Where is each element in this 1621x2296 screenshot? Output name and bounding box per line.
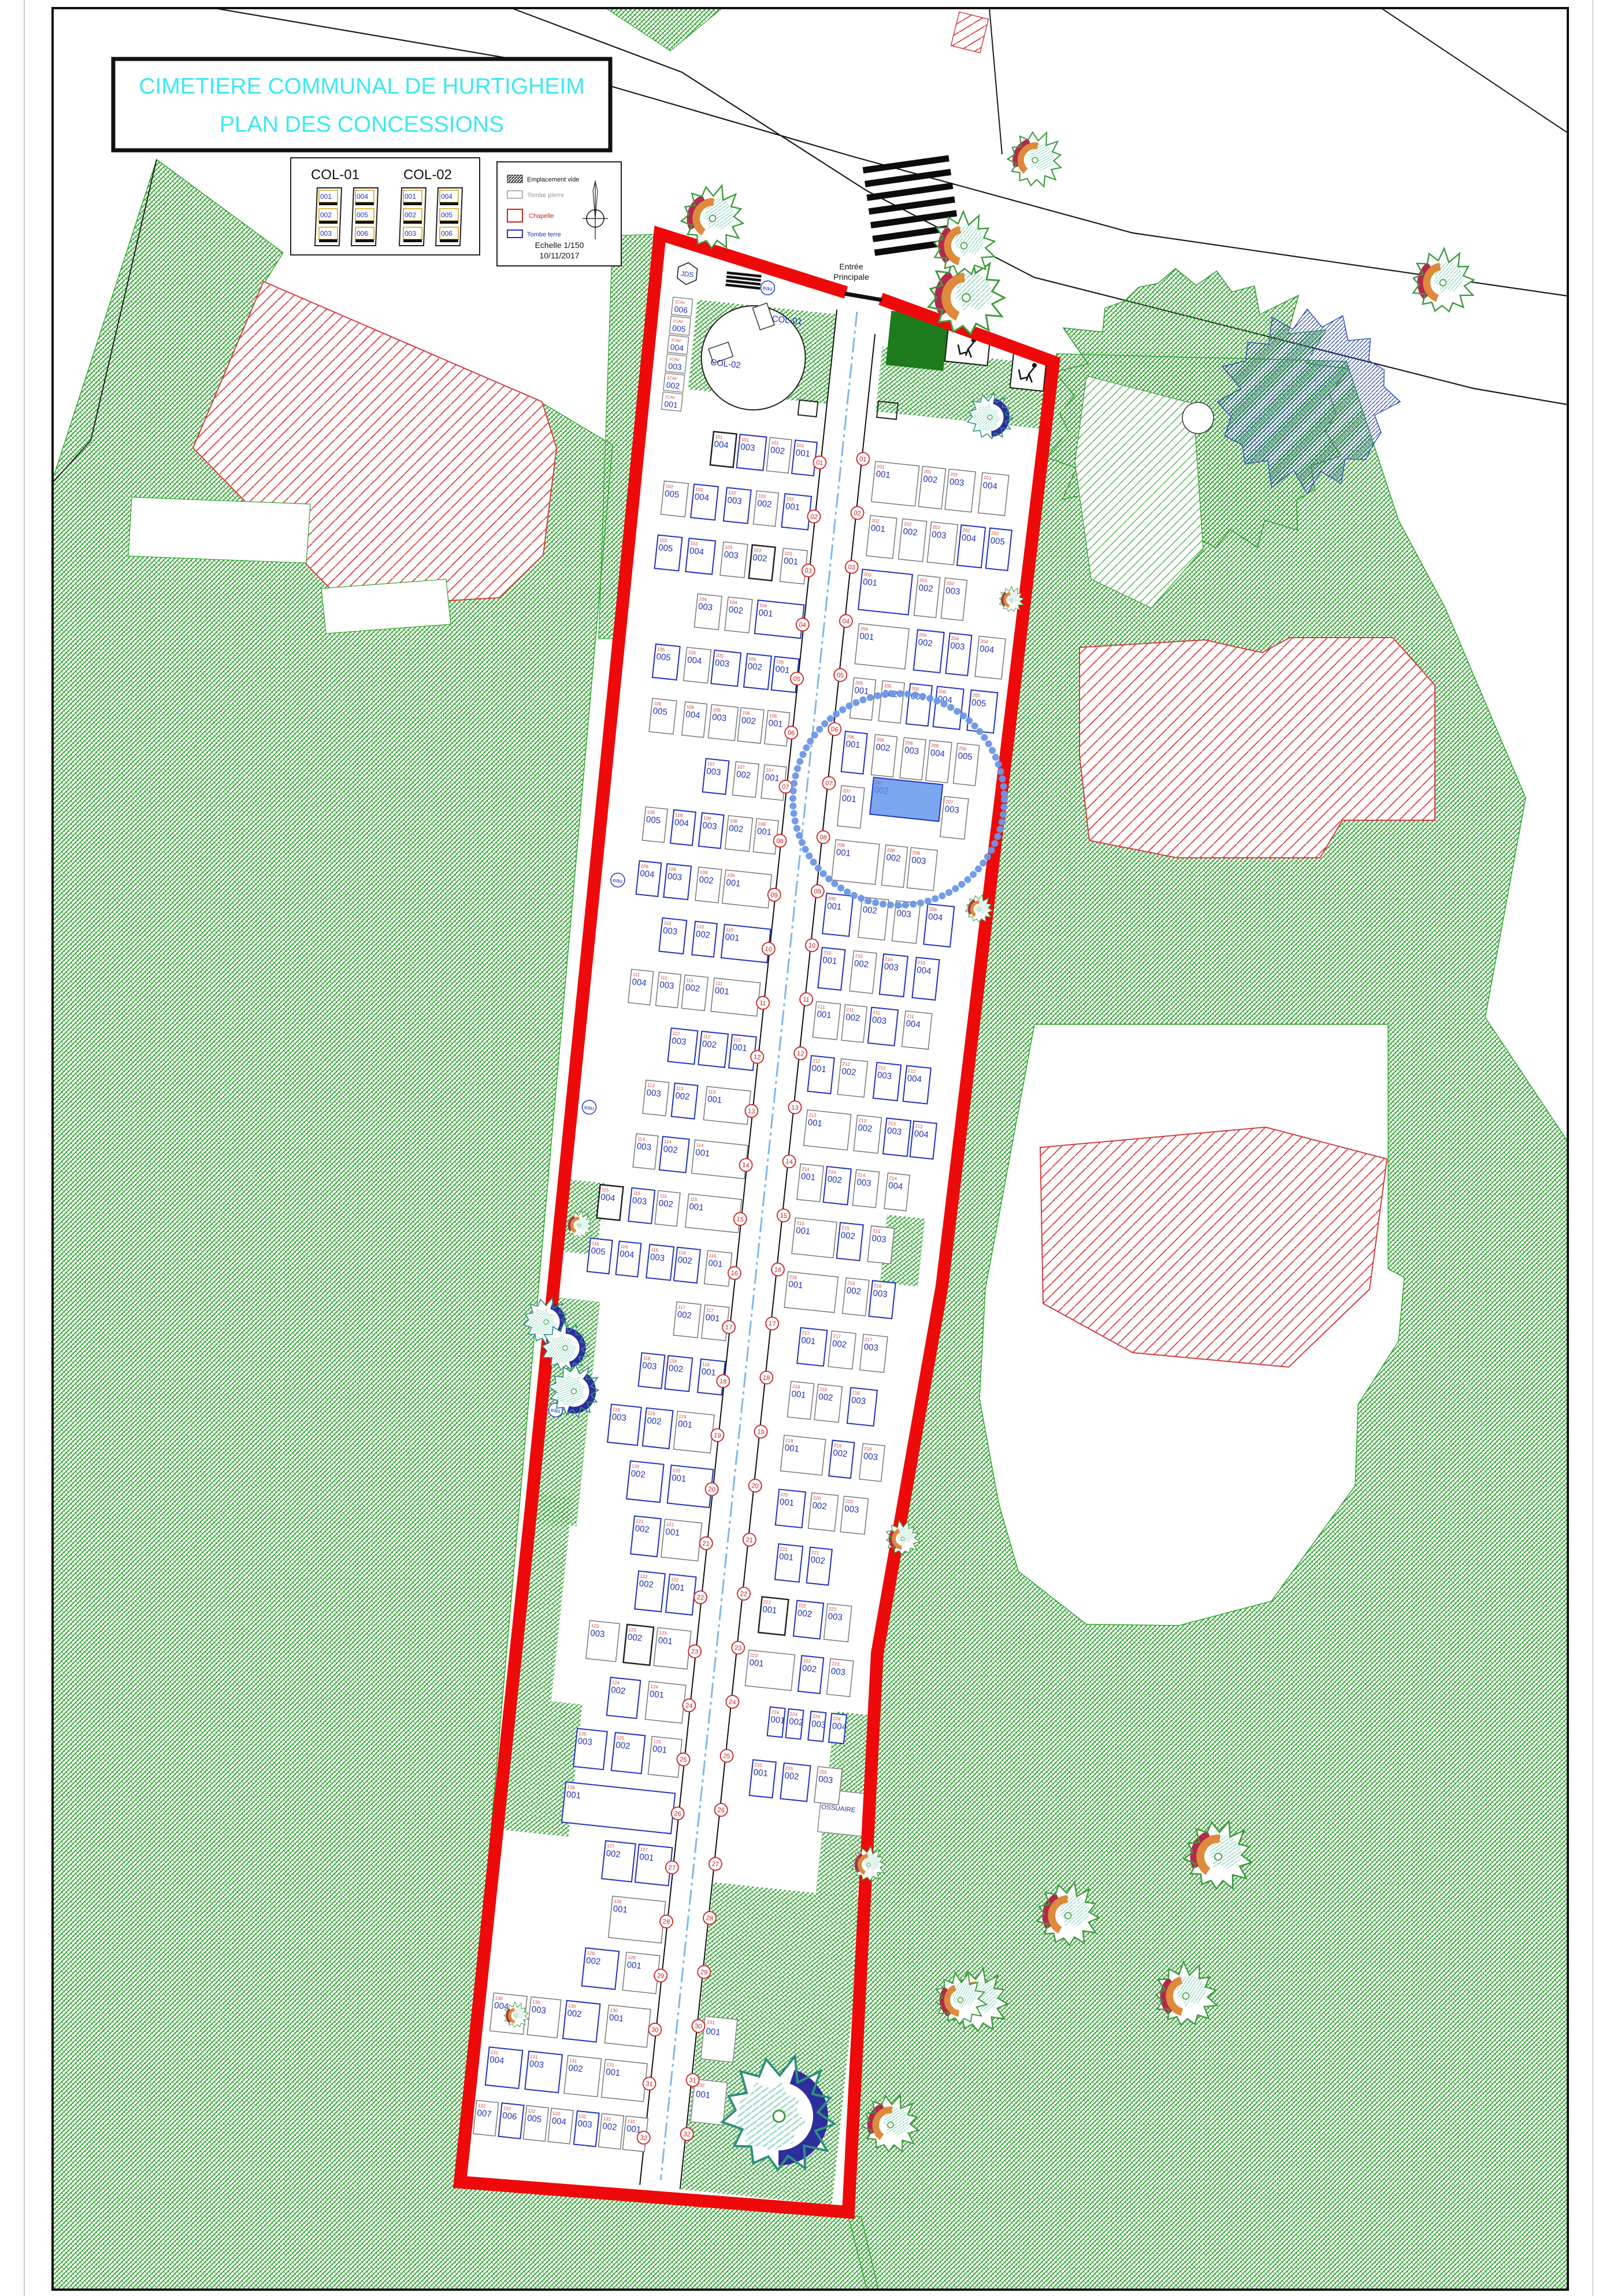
svg-text:002: 002 [876, 742, 891, 754]
svg-text:004: 004 [687, 655, 703, 666]
svg-text:003: 003 [944, 804, 960, 816]
svg-text:003: 003 [811, 1719, 826, 1731]
svg-text:003: 003 [871, 1234, 887, 1245]
svg-text:06: 06 [787, 729, 795, 737]
svg-text:002: 002 [903, 527, 918, 538]
svg-text:002: 002 [627, 1632, 643, 1643]
svg-text:001: 001 [859, 631, 874, 643]
svg-text:30: 30 [651, 2026, 659, 2034]
svg-text:001: 001 [726, 877, 741, 889]
svg-text:007: 007 [477, 2108, 492, 2120]
svg-text:003: 003 [896, 908, 912, 920]
svg-text:002: 002 [770, 445, 785, 457]
svg-text:003: 003 [863, 1451, 878, 1462]
svg-text:001: 001 [639, 1852, 655, 1864]
svg-text:15: 15 [736, 1216, 744, 1223]
svg-text:001: 001 [725, 932, 740, 943]
svg-text:004: 004 [906, 1019, 921, 1030]
svg-text:14: 14 [742, 1162, 750, 1169]
svg-text:001: 001 [807, 1117, 823, 1129]
svg-text:004: 004 [632, 977, 647, 988]
svg-text:231: 231 [707, 2019, 715, 2025]
svg-text:001: 001 [649, 1689, 665, 1701]
svg-text:001: 001 [707, 1094, 722, 1106]
svg-text:002: 002 [886, 853, 902, 864]
svg-text:002: 002 [658, 1198, 674, 1210]
svg-text:001: 001 [876, 469, 891, 480]
svg-text:002: 002 [818, 1392, 834, 1403]
svg-text:004: 004 [357, 192, 368, 201]
svg-text:002: 002 [841, 1066, 857, 1078]
svg-text:004: 004 [979, 644, 995, 656]
svg-text:001: 001 [652, 1744, 667, 1756]
svg-text:08: 08 [819, 834, 827, 842]
svg-text:003: 003 [828, 1612, 843, 1623]
svg-text:002: 002 [685, 983, 700, 994]
svg-text:001: 001 [779, 1497, 795, 1509]
svg-text:004: 004 [832, 1721, 847, 1732]
svg-text:21: 21 [745, 1536, 753, 1544]
svg-text:001: 001 [795, 448, 811, 460]
svg-text:12: 12 [753, 1054, 761, 1061]
svg-text:004: 004 [674, 817, 689, 829]
svg-text:13: 13 [748, 1108, 755, 1115]
svg-text:04: 04 [799, 621, 806, 629]
svg-text:001: 001 [753, 1768, 769, 1779]
svg-text:003: 003 [884, 962, 899, 973]
svg-text:001: 001 [845, 739, 861, 750]
svg-text:003: 003 [702, 820, 718, 832]
svg-text:001: 001 [714, 986, 730, 997]
svg-text:001: 001 [775, 664, 791, 676]
svg-text:005: 005 [441, 211, 452, 219]
svg-text:002: 002 [611, 1685, 626, 1697]
svg-text:002: 002 [695, 929, 711, 940]
svg-text:002: 002 [918, 583, 934, 594]
svg-text:001: 001 [801, 1335, 817, 1347]
svg-text:29: 29 [656, 1972, 664, 1980]
svg-text:003: 003 [877, 1070, 892, 1082]
svg-text:002: 002 [874, 785, 889, 797]
svg-text:004: 004 [961, 532, 977, 544]
svg-text:31: 31 [689, 2077, 696, 2084]
svg-text:001: 001 [749, 1658, 765, 1669]
svg-text:Principale: Principale [833, 272, 869, 282]
svg-text:005: 005 [646, 814, 661, 826]
svg-text:Tombe terre: Tombe terre [527, 231, 561, 238]
svg-text:002: 002 [606, 1849, 621, 1860]
svg-text:003: 003 [667, 871, 682, 883]
svg-text:001: 001 [605, 2067, 621, 2079]
svg-text:002: 002 [756, 498, 772, 510]
svg-text:25: 25 [723, 1753, 730, 1760]
svg-text:001: 001 [822, 955, 838, 966]
svg-text:32: 32 [640, 2134, 647, 2142]
svg-text:27: 27 [668, 1864, 676, 1872]
svg-text:001: 001 [783, 556, 799, 568]
svg-text:002: 002 [862, 905, 878, 916]
svg-text:002: 002 [320, 211, 332, 219]
svg-text:004: 004 [914, 1129, 929, 1140]
svg-text:001: 001 [788, 1279, 804, 1291]
svg-text:001: 001 [854, 686, 870, 697]
svg-text:Chapelle: Chapelle [529, 213, 554, 220]
svg-text:10: 10 [808, 942, 815, 950]
svg-text:003: 003 [405, 229, 416, 238]
svg-text:20: 20 [751, 1482, 759, 1490]
svg-text:17: 17 [725, 1324, 732, 1331]
svg-text:004: 004 [917, 965, 932, 976]
svg-text:002: 002 [647, 1416, 662, 1427]
svg-text:005: 005 [357, 211, 368, 219]
svg-text:JDS: JDS [680, 269, 694, 279]
svg-text:23: 23 [734, 1645, 741, 1652]
svg-text:001: 001 [677, 1419, 693, 1431]
svg-text:003: 003 [873, 1288, 888, 1300]
svg-text:001: 001 [784, 1443, 800, 1454]
svg-text:002: 002 [635, 1524, 650, 1535]
svg-text:006: 006 [357, 229, 368, 238]
svg-text:002: 002 [736, 769, 751, 781]
svg-text:001: 001 [665, 1527, 681, 1538]
svg-text:004: 004 [489, 2055, 505, 2067]
svg-text:26: 26 [674, 1810, 681, 1818]
svg-text:001: 001 [566, 1790, 581, 1801]
svg-text:001: 001 [701, 1367, 717, 1378]
svg-text:001: 001 [791, 1389, 807, 1401]
svg-text:Echelle 1/150: Echelle 1/150 [535, 240, 584, 250]
svg-text:002: 002 [840, 1230, 856, 1242]
svg-text:001: 001 [689, 1202, 704, 1213]
svg-text:11: 11 [803, 996, 810, 1003]
svg-text:003: 003 [727, 495, 743, 507]
svg-text:001: 001 [670, 1582, 685, 1594]
svg-text:07: 07 [825, 780, 833, 787]
svg-text:03: 03 [804, 567, 812, 575]
svg-text:004: 004 [551, 2116, 567, 2127]
svg-text:002: 002 [568, 2063, 584, 2075]
svg-text:002: 002 [789, 1716, 804, 1728]
svg-text:003: 003 [886, 1126, 902, 1138]
svg-text:001: 001 [841, 793, 857, 805]
svg-text:25: 25 [680, 1756, 687, 1764]
svg-text:001: 001 [768, 718, 784, 729]
svg-text:002: 002 [699, 875, 714, 886]
svg-text:32: 32 [683, 2131, 691, 2138]
svg-text:005: 005 [591, 1246, 606, 1257]
svg-text:003: 003 [904, 745, 919, 757]
svg-text:003: 003 [668, 361, 682, 372]
svg-text:005: 005 [672, 323, 686, 334]
svg-text:005: 005 [958, 751, 973, 762]
svg-text:005: 005 [652, 706, 668, 717]
svg-text:10/11/2017: 10/11/2017 [539, 251, 579, 260]
svg-text:005: 005 [990, 536, 1006, 547]
svg-text:003: 003 [740, 442, 756, 454]
svg-text:001: 001 [862, 577, 878, 588]
svg-text:Emplacement vide: Emplacement vide [527, 176, 580, 183]
svg-text:eau: eau [613, 877, 623, 885]
svg-text:Tombe pierre: Tombe pierre [527, 192, 564, 199]
svg-text:003: 003 [863, 1342, 879, 1353]
svg-text:003: 003 [844, 1504, 859, 1516]
svg-text:30: 30 [695, 2023, 702, 2030]
svg-text:002: 002 [784, 1771, 800, 1782]
svg-text:002: 002 [845, 1012, 860, 1024]
svg-text:04: 04 [842, 618, 850, 625]
svg-text:002: 002 [630, 1469, 646, 1480]
svg-text:001: 001 [785, 501, 800, 513]
svg-text:004: 004 [619, 1249, 635, 1260]
svg-text:PLAN DES CONCESSIONS: PLAN DES CONCESSIONS [220, 112, 504, 137]
svg-text:002: 002 [747, 661, 763, 673]
svg-text:001: 001 [817, 1009, 832, 1021]
svg-text:19: 19 [757, 1428, 765, 1436]
svg-text:COL-02: COL-02 [403, 167, 452, 183]
svg-text:002: 002 [858, 1123, 873, 1134]
svg-text:001: 001 [658, 1635, 673, 1647]
svg-text:01: 01 [859, 456, 867, 463]
svg-text:18: 18 [763, 1374, 770, 1382]
svg-text:001: 001 [826, 901, 842, 913]
svg-text:005: 005 [971, 698, 986, 709]
svg-text:002: 002 [832, 1339, 847, 1350]
svg-text:Entrée: Entrée [839, 262, 863, 271]
svg-text:26: 26 [717, 1806, 725, 1814]
svg-text:002: 002 [728, 605, 744, 616]
svg-text:003: 003 [529, 2059, 544, 2071]
svg-text:005: 005 [526, 2113, 542, 2125]
svg-text:16: 16 [774, 1266, 781, 1274]
svg-text:eau: eau [584, 1105, 595, 1112]
svg-text:003: 003 [320, 229, 332, 238]
svg-text:19: 19 [714, 1432, 721, 1439]
svg-text:003: 003 [650, 1252, 665, 1264]
svg-text:001: 001 [706, 2026, 721, 2038]
svg-text:004: 004 [639, 868, 655, 880]
svg-text:005: 005 [658, 543, 674, 554]
svg-text:002: 002 [677, 1255, 693, 1266]
svg-text:001: 001 [664, 399, 678, 409]
svg-text:15: 15 [780, 1212, 787, 1220]
svg-text:23: 23 [691, 1648, 698, 1656]
svg-text:28: 28 [706, 1914, 713, 1922]
svg-text:001: 001 [758, 608, 774, 619]
svg-text:003: 003 [632, 1195, 647, 1207]
svg-text:004: 004 [907, 1073, 922, 1085]
svg-text:003: 003 [931, 529, 947, 541]
svg-text:001: 001 [405, 192, 416, 201]
svg-text:003: 003 [830, 1667, 846, 1678]
svg-text:003: 003 [646, 1088, 662, 1099]
svg-text:002: 002 [832, 1448, 848, 1460]
svg-text:001: 001 [765, 772, 780, 784]
svg-text:05: 05 [793, 675, 800, 683]
svg-text:003: 003 [662, 925, 678, 937]
svg-text:29: 29 [700, 1969, 707, 1976]
svg-text:002: 002 [854, 958, 869, 970]
svg-text:003: 003 [577, 1736, 593, 1747]
svg-text:22: 22 [696, 1594, 704, 1602]
svg-text:002: 002 [585, 1956, 601, 1967]
svg-text:002: 002 [812, 1501, 828, 1512]
svg-text:003: 003 [671, 1036, 687, 1047]
svg-text:001: 001 [695, 2089, 711, 2101]
svg-text:001: 001 [795, 1225, 811, 1237]
svg-text:002: 002 [702, 1039, 717, 1050]
svg-text:003: 003 [818, 1774, 833, 1786]
svg-text:002: 002 [922, 474, 938, 486]
svg-text:06: 06 [830, 726, 838, 734]
svg-text:001: 001 [870, 523, 886, 535]
svg-text:003: 003 [659, 980, 674, 991]
svg-text:22: 22 [740, 1590, 747, 1598]
svg-text:004: 004 [982, 480, 998, 492]
svg-text:002: 002 [615, 1740, 631, 1751]
svg-text:004: 004 [928, 912, 943, 923]
svg-text:002: 002 [810, 1555, 826, 1567]
svg-text:005: 005 [664, 488, 680, 500]
svg-text:001: 001 [705, 1313, 721, 1324]
svg-text:003: 003 [950, 640, 966, 652]
svg-text:003: 003 [911, 855, 926, 866]
svg-text:002: 002 [602, 2121, 618, 2133]
svg-text:001: 001 [770, 1714, 786, 1726]
svg-text:002: 002 [728, 823, 744, 835]
svg-text:002: 002 [639, 1579, 654, 1590]
svg-text:001: 001 [762, 1605, 778, 1616]
svg-text:001: 001 [609, 2013, 624, 2024]
svg-text:002: 002 [675, 1091, 691, 1102]
svg-text:07: 07 [782, 783, 789, 791]
svg-text:002: 002 [752, 553, 768, 564]
svg-text:006: 006 [674, 304, 688, 314]
svg-text:004: 004 [600, 1192, 616, 1203]
svg-text:001: 001 [626, 1960, 642, 1971]
svg-text:COL-01: COL-01 [311, 167, 359, 183]
svg-text:003: 003 [711, 712, 727, 724]
svg-text:003: 003 [706, 766, 722, 778]
svg-text:002: 002 [827, 1174, 843, 1186]
svg-text:003: 003 [641, 1361, 657, 1372]
svg-text:18: 18 [719, 1378, 726, 1386]
svg-text:002: 002 [846, 1286, 862, 1297]
svg-text:003: 003 [531, 2005, 547, 2016]
svg-text:001: 001 [778, 1551, 794, 1563]
svg-text:16: 16 [730, 1270, 738, 1277]
svg-text:10: 10 [765, 946, 772, 953]
svg-text:21: 21 [702, 1540, 710, 1547]
svg-text:001: 001 [800, 1171, 816, 1183]
svg-text:CIMETIERE COMMUNAL DE HURTIGHE: CIMETIERE COMMUNAL DE HURTIGHEIM [139, 74, 584, 99]
svg-text:001: 001 [613, 1904, 628, 1915]
svg-text:002: 002 [741, 715, 756, 727]
svg-text:003: 003 [611, 1412, 627, 1424]
svg-text:004: 004 [694, 492, 710, 503]
svg-text:24: 24 [729, 1698, 736, 1706]
svg-text:09: 09 [770, 891, 778, 899]
svg-text:31: 31 [646, 2080, 653, 2088]
svg-text:002: 002 [663, 1144, 678, 1156]
svg-text:003: 003 [856, 1177, 872, 1189]
svg-text:003: 003 [724, 550, 739, 561]
svg-text:002: 002 [797, 1608, 813, 1620]
svg-text:08: 08 [776, 838, 784, 845]
svg-text:13: 13 [791, 1104, 799, 1112]
svg-text:003: 003 [945, 586, 960, 597]
svg-text:003: 003 [714, 658, 730, 669]
svg-text:001: 001 [320, 192, 332, 201]
svg-text:27: 27 [711, 1861, 719, 1868]
svg-text:002: 002 [405, 211, 416, 219]
svg-text:001: 001 [671, 1473, 687, 1484]
svg-text:01: 01 [816, 459, 824, 466]
svg-text:28: 28 [662, 1919, 670, 1926]
svg-text:004: 004 [714, 439, 729, 451]
svg-text:004: 004 [930, 748, 945, 760]
svg-text:001: 001 [811, 1063, 827, 1075]
svg-text:12: 12 [796, 1050, 804, 1058]
svg-text:003: 003 [851, 1395, 866, 1407]
svg-text:004: 004 [441, 192, 452, 201]
svg-text:002: 002 [802, 1663, 817, 1675]
svg-text:17: 17 [768, 1320, 776, 1328]
svg-text:006: 006 [441, 229, 452, 238]
svg-text:002: 002 [567, 2008, 583, 2020]
svg-text:eau: eau [762, 285, 773, 292]
svg-text:003: 003 [698, 601, 713, 613]
svg-text:003: 003 [636, 1141, 652, 1153]
svg-text:05: 05 [836, 672, 844, 679]
svg-text:002: 002 [918, 638, 933, 649]
svg-text:001: 001 [756, 826, 772, 838]
svg-text:004: 004 [888, 1180, 903, 1192]
svg-text:002: 002 [677, 1309, 692, 1321]
svg-text:001: 001 [695, 1147, 711, 1159]
svg-text:001: 001 [732, 1042, 748, 1054]
svg-text:003: 003 [871, 1015, 887, 1027]
svg-text:003: 003 [590, 1628, 606, 1640]
svg-text:11: 11 [759, 999, 767, 1007]
svg-text:03: 03 [848, 564, 855, 571]
svg-text:001: 001 [836, 847, 851, 859]
svg-text:003: 003 [949, 477, 965, 488]
svg-text:20: 20 [708, 1486, 715, 1494]
svg-text:09: 09 [814, 888, 821, 895]
svg-text:14: 14 [785, 1158, 793, 1166]
svg-text:003: 003 [577, 2119, 593, 2130]
svg-text:02: 02 [854, 510, 861, 517]
svg-text:001: 001 [708, 1258, 724, 1270]
svg-text:002: 002 [666, 380, 680, 391]
svg-text:004: 004 [689, 546, 704, 557]
svg-text:02: 02 [810, 513, 818, 521]
svg-text:004: 004 [685, 709, 701, 721]
svg-text:004: 004 [670, 342, 684, 353]
svg-text:24: 24 [685, 1702, 693, 1710]
svg-text:006: 006 [502, 2110, 518, 2122]
svg-text:005: 005 [656, 651, 672, 663]
svg-text:002: 002 [668, 1363, 684, 1375]
